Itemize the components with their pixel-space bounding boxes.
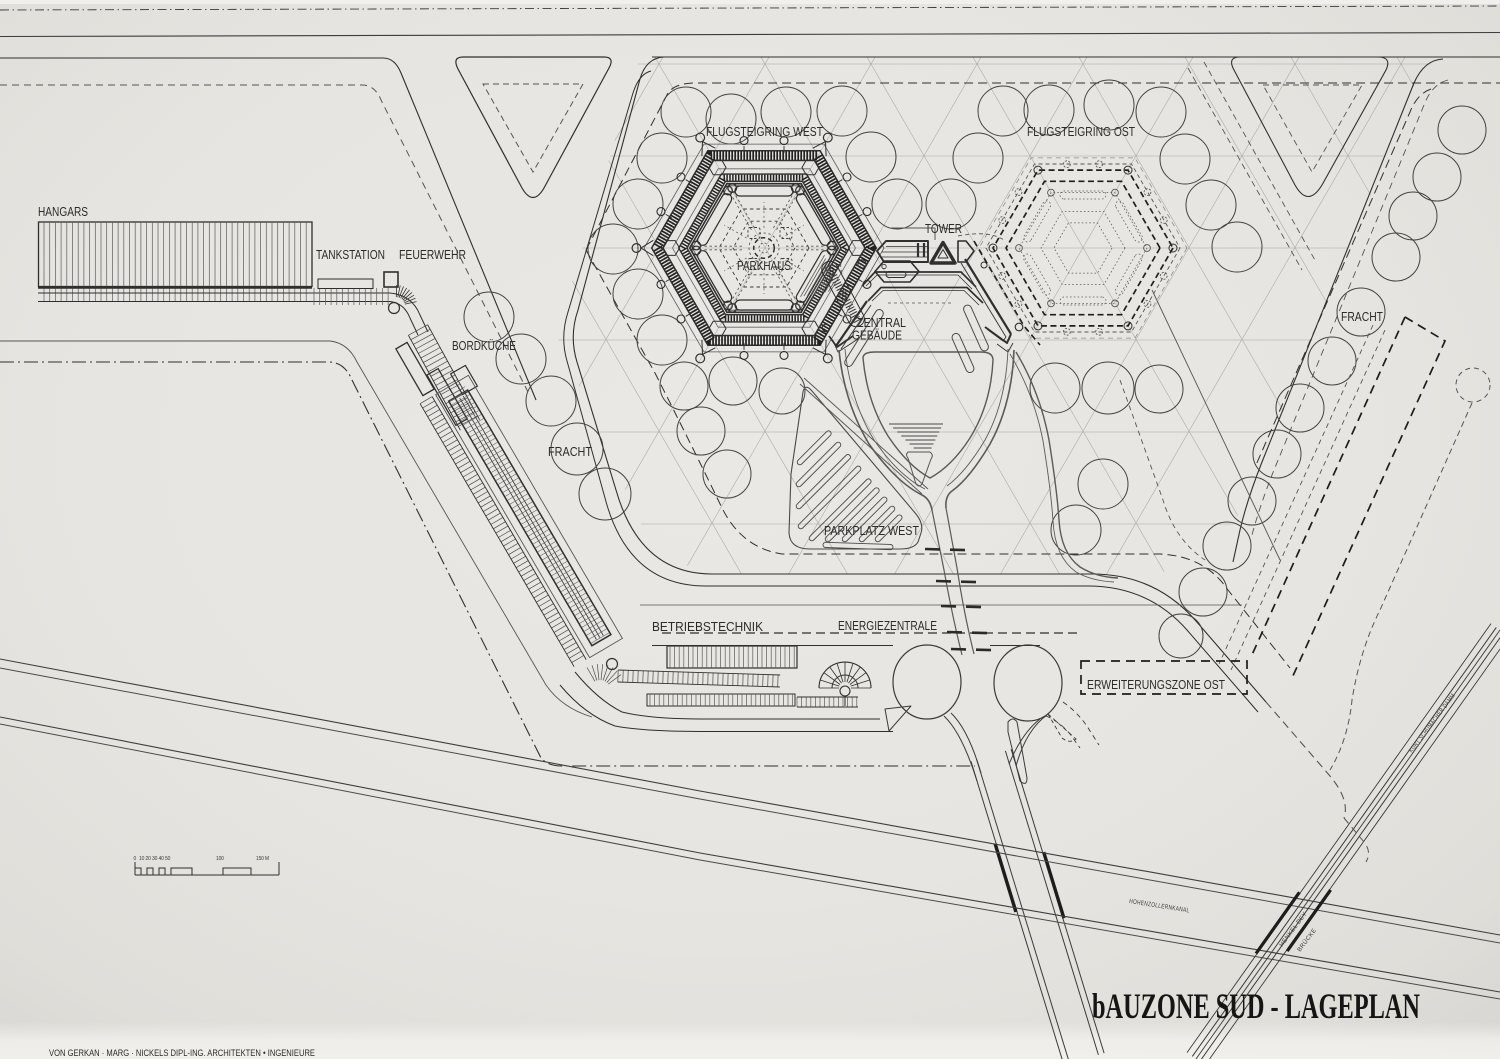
svg-text:ERWEITERUNGSZONE OST: ERWEITERUNGSZONE OST <box>1087 677 1225 692</box>
svg-text:FEUERWEHR: FEUERWEHR <box>399 247 466 262</box>
svg-text:HANGARS: HANGARS <box>38 204 88 219</box>
svg-text:0: 0 <box>134 856 137 862</box>
svg-text:FLUGSTEIGRING WEST: FLUGSTEIGRING WEST <box>706 124 823 139</box>
svg-text:100: 100 <box>216 856 224 862</box>
svg-text:FRACHT: FRACHT <box>1341 309 1383 324</box>
svg-text:TANKSTATION: TANKSTATION <box>316 247 385 262</box>
svg-text:150 M: 150 M <box>256 856 269 862</box>
svg-text:50: 50 <box>165 856 171 862</box>
svg-text:BETRIEBSTECHNIK: BETRIEBSTECHNIK <box>652 619 763 634</box>
svg-text:BORDKÜCHE: BORDKÜCHE <box>452 338 516 353</box>
svg-text:PARKPLATZ WEST: PARKPLATZ WEST <box>824 523 919 538</box>
svg-text:30: 30 <box>152 856 158 862</box>
svg-text:ENERGIEZENTRALE: ENERGIEZENTRALE <box>838 618 937 633</box>
svg-text:FLUGSTEIGRING OST: FLUGSTEIGRING OST <box>1027 124 1135 139</box>
svg-text:bAUZONE SUD - LAGEPLAN: bAUZONE SUD - LAGEPLAN <box>1092 986 1420 1026</box>
svg-text:GEBÄUDE: GEBÄUDE <box>852 329 902 343</box>
svg-text:10: 10 <box>139 856 145 862</box>
svg-text:PARKHAUS: PARKHAUS <box>737 258 791 273</box>
svg-text:FRACHT: FRACHT <box>548 444 592 459</box>
svg-text:40: 40 <box>159 856 165 862</box>
svg-text:20: 20 <box>146 856 152 862</box>
svg-text:VON GERKAN · MARG · NICKELS: VON GERKAN · MARG · NICKELS DIPL-ING. AR… <box>49 1048 315 1058</box>
svg-text:TOWER: TOWER <box>925 221 962 236</box>
